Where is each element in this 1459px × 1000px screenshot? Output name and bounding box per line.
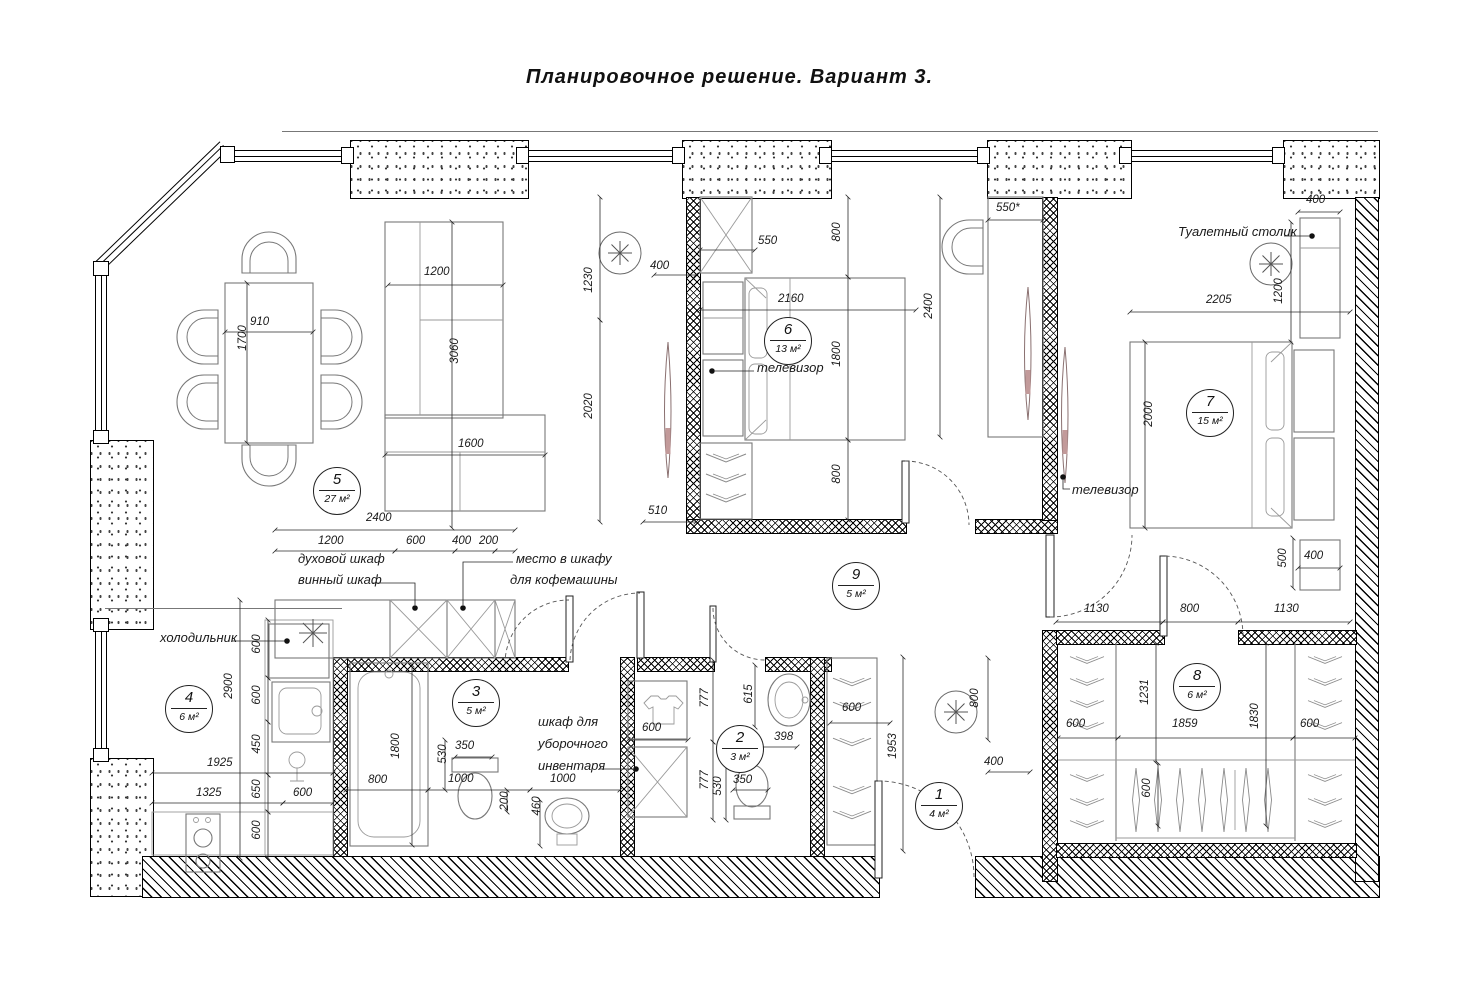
dim-label: 500 [1277,537,1289,579]
bedroom6-furniture [700,197,1043,519]
dim-label: 600 [1141,767,1153,809]
dim-label: 1859 [1172,718,1198,730]
dim-label: 450 [251,723,263,765]
dim-label: 530 [437,733,449,775]
dim-label: 1800 [831,333,843,375]
dim-label: 615 [743,673,755,715]
tv-living-icon [665,342,672,478]
kitchen-cabinet-row [275,600,515,658]
dim-label: 1000 [550,773,576,785]
dim-label: 600 [642,722,661,734]
dim-label: 1700 [237,317,249,359]
sofa [385,222,545,511]
dim-label: 510 [648,505,667,517]
dim-label: 350 [733,774,752,786]
dim-label: 800 [969,677,981,719]
dim-label: 1830 [1249,695,1261,737]
dim-label: 800 [1180,603,1199,615]
dim-label: 2020 [583,385,595,427]
label-cleaning-2: уборочного [538,736,608,751]
dim-label: 1230 [583,259,595,301]
dim-label: 1925 [207,757,233,769]
dim-label: 200 [499,780,511,822]
dim-label: 600 [1300,718,1319,730]
label-wine: винный шкаф [298,572,382,587]
dim-label: 2400 [366,512,392,524]
room-badge-8: 8 6 м² [1173,663,1221,711]
dim-label: 600 [842,702,861,714]
label-tv-7: телевизор [1072,482,1139,497]
dim-label: 550 [758,235,777,247]
dim-label: 800 [831,453,843,495]
dim-label: 2205 [1206,294,1232,306]
dim-label: 1200 [1273,270,1285,312]
dim-label: 530 [712,765,724,807]
dim-label: 1130 [1274,603,1299,615]
dim-label: 400 [984,756,1003,768]
label-oven: духовой шкаф [298,551,385,566]
dim-label: 600 [251,809,263,851]
dim-label: 400 [452,535,471,547]
dim-label: 777 [699,759,711,801]
dim-label: 1953 [887,725,899,767]
dim-label: 1130 [1084,603,1109,615]
dim-label: 400 [1304,550,1323,562]
label-cleaning-3: инвентаря [538,758,605,773]
dim-label: 2160 [778,293,804,305]
label-cleaning-1: шкаф для [538,714,598,729]
room-badge-3: 3 5 м² [452,679,500,727]
dim-label: 200 [479,535,498,547]
label-coffee-1: место в шкафу [516,551,612,566]
dim-label: 910 [250,316,269,328]
room-badge-6: 6 13 м² [764,317,812,365]
dim-label: 650 [251,768,263,810]
dim-label: 400 [1306,194,1325,206]
room-badge-1: 1 4 м² [915,782,963,830]
dim-label: 600 [406,535,425,547]
room-badge-5: 5 27 м² [313,467,361,515]
dim-label: 1600 [458,438,484,450]
dim-label: 1800 [390,725,402,767]
label-vanity: Туалетный столик [1178,224,1297,239]
hall-wardrobe-strip [827,658,877,845]
dim-label: 600 [251,674,263,716]
dim-label: 800 [831,211,843,253]
dim-label: 550* [996,202,1020,214]
dim-label: 600 [251,623,263,665]
tv-wall6-icon [1025,287,1032,420]
dining-set [177,232,362,486]
room-badge-2: 2 3 м² [716,725,764,773]
dim-label: 2000 [1143,393,1155,435]
dim-label: 777 [699,677,711,719]
doors [505,461,1243,878]
dim-label: 1200 [318,535,344,547]
label-coffee-2: для кофемашины [510,572,617,587]
label-leaders [232,233,1315,772]
dim-label: 2900 [223,665,235,707]
dim-label: 1000 [448,773,474,785]
room-badge-4: 4 6 м² [165,685,213,733]
dim-label: 460 [531,785,543,827]
dim-label: 398 [774,731,793,743]
floor-plan: Планировочное решение. Вариант 3. [0,0,1459,1000]
dim-label: 3060 [449,330,461,372]
dim-label: 600 [293,787,312,799]
bedroom7-furniture [1130,218,1340,590]
label-fridge: холодильник [160,630,237,645]
room-badge-7: 7 15 м² [1186,389,1234,437]
room-badge-9: 9 5 м² [832,562,880,610]
dim-label: 1325 [196,787,222,799]
tv-wall7-icon [1062,347,1069,483]
drawing-overlay [0,0,1459,1000]
dim-label: 800 [368,774,387,786]
dim-label: 1200 [424,266,450,278]
dim-label: 350 [455,740,474,752]
dim-label: 400 [650,260,669,272]
dim-label: 600 [1066,718,1085,730]
dim-label: 1231 [1139,671,1151,713]
dim-label: 2400 [923,285,935,327]
